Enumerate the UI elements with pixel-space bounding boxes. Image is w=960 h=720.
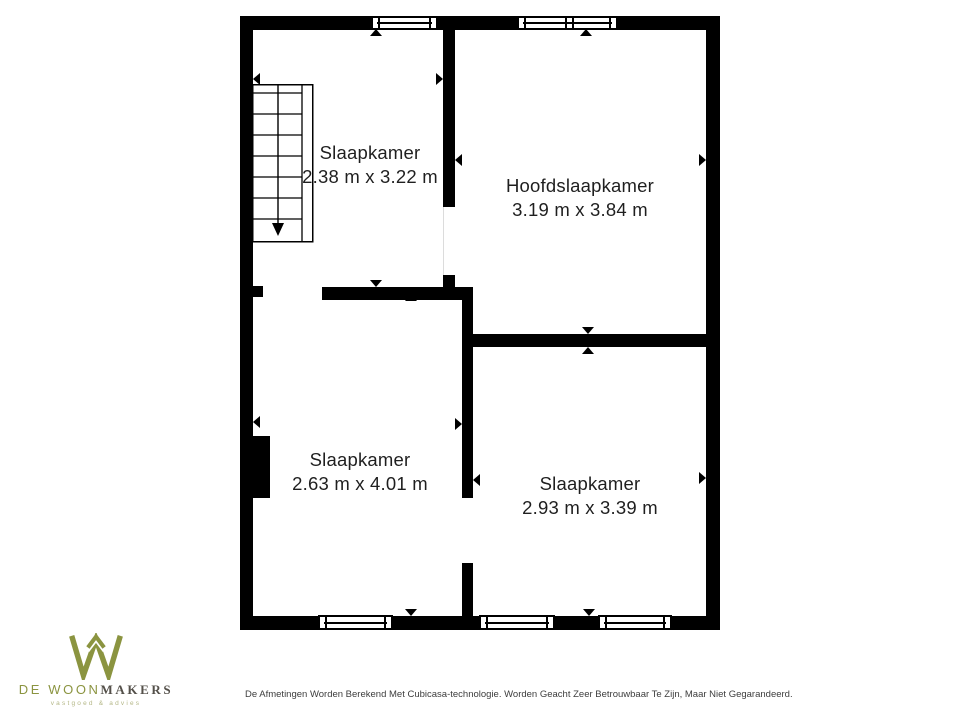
room-name: Slaapkamer — [480, 472, 700, 496]
room-label-slaapkamer-bottomleft: Slaapkamer 2.63 m x 4.01 m — [250, 448, 470, 496]
room-dimensions: 2.38 m x 3.22 m — [260, 165, 480, 189]
wall-marker-icon — [583, 609, 595, 616]
brand-name-primary: DE WOON — [19, 682, 101, 697]
room-name: Slaapkamer — [260, 141, 480, 165]
wall-marker-icon — [699, 154, 706, 166]
interior-wall-bottom-rooms-stub — [462, 563, 473, 616]
wall-marker-icon — [473, 474, 480, 486]
door-opening-top-rooms — [443, 207, 444, 275]
window-icon — [479, 615, 555, 630]
wall-marker-icon — [405, 294, 417, 301]
wall-marker-icon — [436, 73, 443, 85]
room-dimensions: 3.19 m x 3.84 m — [470, 198, 690, 222]
room-dimensions: 2.63 m x 4.01 m — [250, 472, 470, 496]
disclaimer-text: De Afmetingen Worden Berekend Met Cubica… — [245, 689, 793, 700]
w-monogram-icon — [69, 633, 123, 680]
window-icon — [598, 615, 672, 630]
interior-wall-horizontal-right — [462, 334, 706, 347]
wall-marker-icon — [582, 327, 594, 334]
brand-tagline: vastgoed & advies — [18, 700, 174, 707]
wall-marker-icon — [253, 416, 260, 428]
wall-marker-icon — [580, 29, 592, 36]
window-icon — [371, 16, 438, 30]
room-label-slaapkamer-bottomright: Slaapkamer 2.93 m x 3.39 m — [480, 472, 700, 520]
wall-marker-icon — [370, 280, 382, 287]
wall-marker-icon — [699, 472, 706, 484]
room-name: Slaapkamer — [250, 448, 470, 472]
brand-name: DE WOONMAKERS — [18, 682, 174, 698]
wall-marker-icon — [455, 418, 462, 430]
wall-marker-icon — [253, 73, 260, 85]
floorplan-page: Slaapkamer 2.38 m x 3.22 m Hoofdslaapkam… — [0, 0, 960, 720]
exterior-wall-right — [706, 16, 720, 630]
room-name: Hoofdslaapkamer — [470, 174, 690, 198]
room-dimensions: 2.93 m x 3.39 m — [480, 496, 700, 520]
interior-wall-horizontal-left — [322, 287, 473, 300]
wall-marker-icon — [405, 609, 417, 616]
wall-marker-icon — [370, 29, 382, 36]
room-label-hoofdslaapkamer: Hoofdslaapkamer 3.19 m x 3.84 m — [470, 174, 690, 222]
company-logo: DE WOONMAKERS vastgoed & advies — [18, 633, 174, 707]
wall-marker-icon — [582, 347, 594, 354]
room-label-slaapkamer-topleft: Slaapkamer 2.38 m x 3.22 m — [260, 141, 480, 189]
brand-name-secondary: MAKERS — [101, 682, 174, 697]
window-icon — [318, 615, 393, 630]
interior-wall-midleft-stub — [253, 286, 263, 297]
exterior-wall-top — [240, 16, 720, 30]
window-icon — [517, 16, 618, 30]
